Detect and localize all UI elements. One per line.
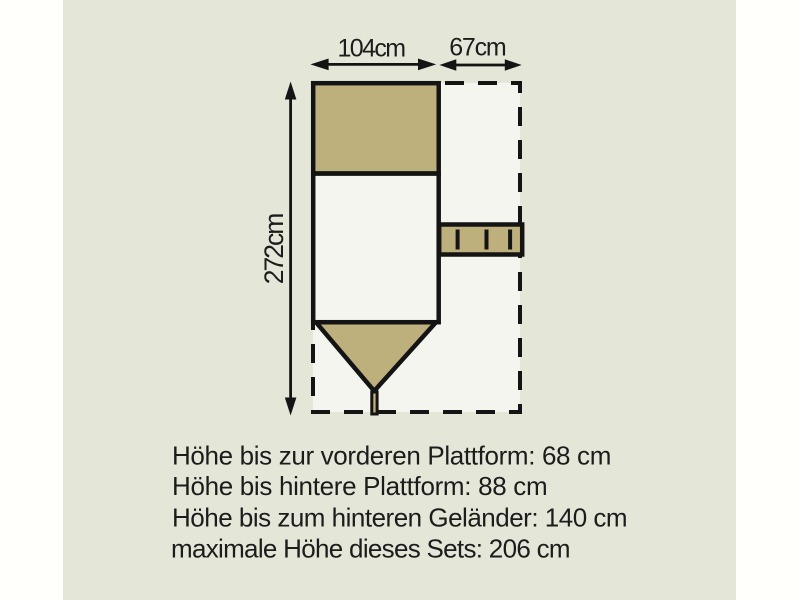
svg-text:Höhe bis zur vorderen Plattfor: Höhe bis zur vorderen Plattform: 68 cm — [172, 441, 611, 471]
svg-text:Höhe bis hintere Plattform: 88: Höhe bis hintere Plattform: 88 cm — [172, 471, 547, 501]
svg-text:104cm: 104cm — [337, 34, 405, 62]
svg-text:67cm: 67cm — [449, 34, 506, 62]
svg-text:Höhe bis zum hinteren Geländer: Höhe bis zum hinteren Geländer: 140 cm — [172, 502, 627, 532]
svg-text:maximale Höhe dieses Sets: 206: maximale Höhe dieses Sets: 206 cm — [171, 534, 570, 564]
svg-text:272cm: 272cm — [259, 214, 289, 284]
